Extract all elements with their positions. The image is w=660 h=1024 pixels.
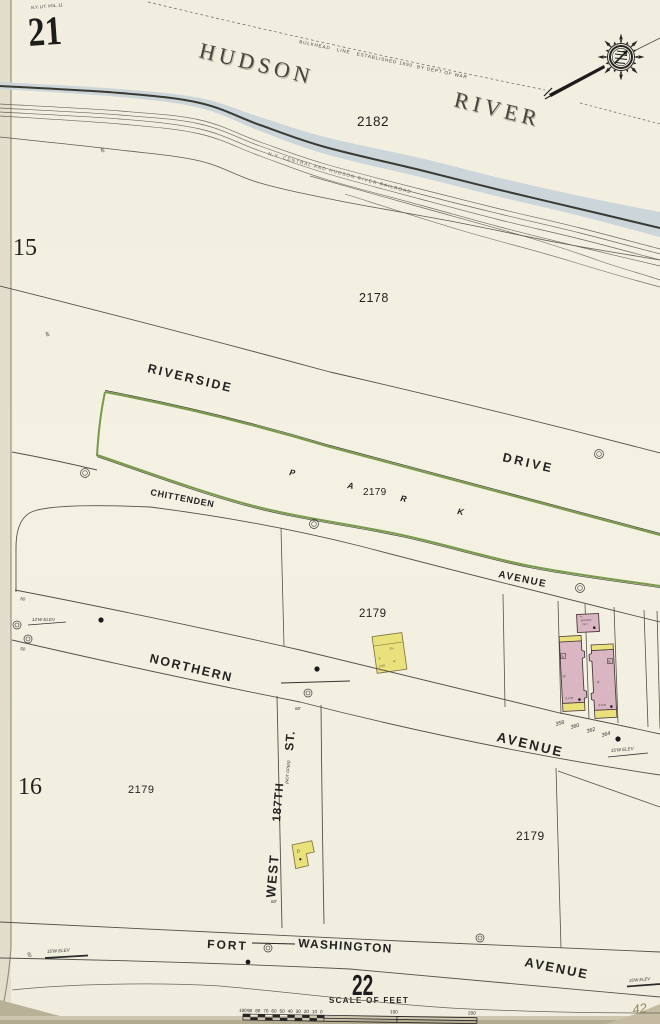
svg-text:80: 80 — [255, 1008, 261, 1013]
svg-text:D: D — [296, 848, 299, 853]
svg-text:200: 200 — [468, 1011, 476, 1016]
svg-text:2179: 2179 — [363, 487, 387, 498]
svg-text:3.0 St: 3.0 St — [565, 696, 573, 700]
svg-text:15: 15 — [13, 235, 37, 261]
svg-text:3.0 St: 3.0 St — [598, 703, 606, 707]
svg-text:FORT: FORT — [207, 937, 248, 953]
svg-text:16: 16 — [18, 774, 42, 800]
svg-text:10: 10 — [312, 1009, 318, 1014]
svg-text:2179: 2179 — [359, 608, 387, 620]
svg-text:12'W ELEV: 12'W ELEV — [32, 617, 56, 622]
svg-text:30: 30 — [296, 1009, 302, 1014]
svg-text:PICT: PICT — [582, 622, 589, 626]
svg-text:2179: 2179 — [128, 784, 154, 796]
svg-text:60': 60' — [295, 706, 301, 711]
svg-text:2179: 2179 — [516, 829, 545, 843]
svg-text:2178: 2178 — [359, 291, 389, 305]
svg-text:40: 40 — [288, 1009, 294, 1014]
svg-text:ST.: ST. — [282, 730, 298, 751]
svg-text:70: 70 — [263, 1008, 269, 1013]
svg-text:21: 21 — [27, 9, 64, 56]
svg-text:42: 42 — [631, 1000, 648, 1017]
svg-text:100: 100 — [239, 1008, 247, 1013]
svg-text:2182: 2182 — [357, 114, 389, 129]
svg-text:50: 50 — [280, 1009, 286, 1014]
svg-text:60: 60 — [271, 1008, 277, 1013]
svg-text:MOVING: MOVING — [581, 618, 592, 623]
svg-text:100: 100 — [390, 1009, 398, 1014]
svg-text:20: 20 — [304, 1009, 310, 1014]
svg-text:60': 60' — [271, 899, 277, 904]
svg-text:90: 90 — [247, 1008, 253, 1013]
svg-text:2½: 2½ — [388, 646, 394, 651]
